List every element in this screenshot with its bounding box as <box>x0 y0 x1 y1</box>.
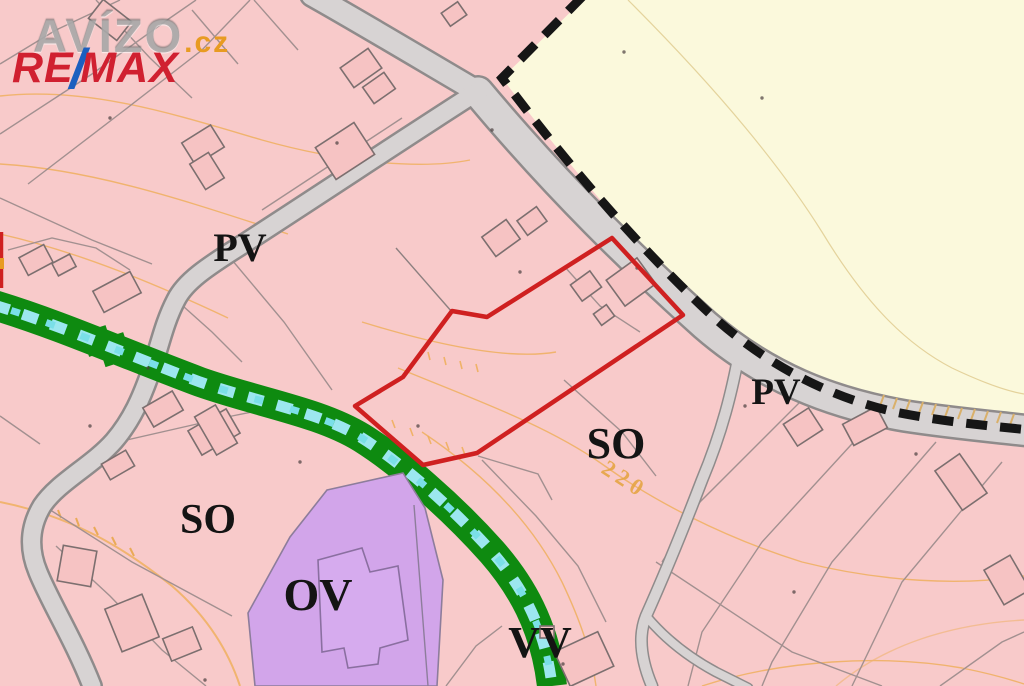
zone-label-ov: OV <box>284 569 353 620</box>
remax-logo: RE/MAX <box>12 36 179 101</box>
zone-label-pv-upper-left: PV <box>213 225 266 270</box>
zone-label-pv-right: PV <box>751 372 801 413</box>
remax-logo-re: RE <box>12 44 74 92</box>
remax-logo-max: MAX <box>80 44 179 92</box>
zone-label-vv: VV <box>508 618 572 667</box>
zoning-map-canvas[interactable]: PV PV SO SO OV VV 220 AVÍZO.cz RE/MAX <box>0 0 1024 686</box>
avizo-watermark-suffix: .cz <box>184 26 230 59</box>
zoning-map: PV PV SO SO OV VV 220 <box>0 0 1024 686</box>
zone-label-so-left: SO <box>180 497 236 543</box>
